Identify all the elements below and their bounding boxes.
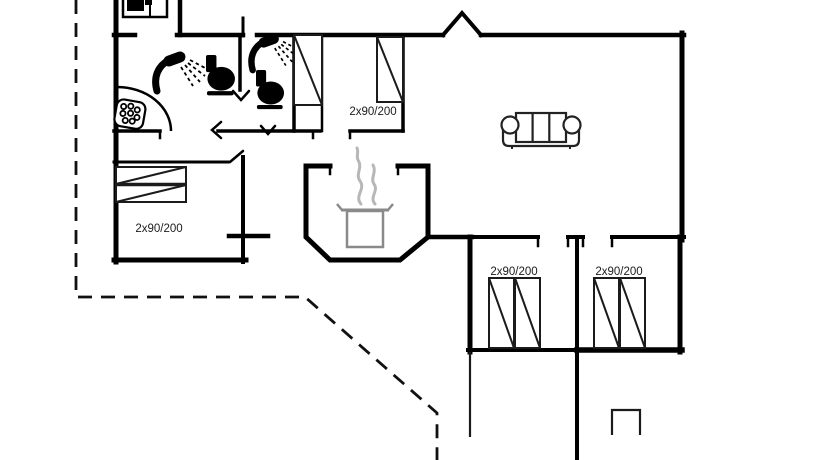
chimney-icon: [612, 410, 640, 435]
wardrobe-icon: [294, 35, 322, 105]
floor-plan-drawing: 2x90/200 2x90/200 2x90/200: [0, 0, 834, 460]
bed-label-bedroom2: 2x90/200: [595, 266, 642, 278]
terrace-lines: [470, 352, 640, 437]
bed-label-top-bunk: 2x90/200: [349, 106, 396, 118]
door-chevron: [233, 91, 249, 100]
double-bed-1: [489, 278, 540, 348]
steam-icon: [357, 148, 375, 204]
toilet-icon: [256, 70, 284, 109]
sink-bubbles-icon: [113, 87, 171, 131]
bed-label-bedroom1: 2x90/200: [490, 266, 537, 278]
bunk-bed-top: [377, 37, 403, 102]
bunk-bed-left: [116, 167, 186, 202]
washer-icon: [123, 0, 167, 17]
roof-peak: [443, 13, 481, 35]
toilet-icon: [206, 55, 235, 95]
floor-plan-canvas: 2x90/200 2x90/200 2x90/200: [0, 0, 834, 460]
bed-label-left-bunk: 2x90/200: [135, 223, 182, 235]
sofa-icon: [502, 113, 581, 149]
double-bed-2: [594, 278, 645, 348]
cooking-pot-icon: [337, 204, 393, 247]
shower-icon: [156, 57, 207, 91]
shower-icon: [251, 39, 298, 70]
